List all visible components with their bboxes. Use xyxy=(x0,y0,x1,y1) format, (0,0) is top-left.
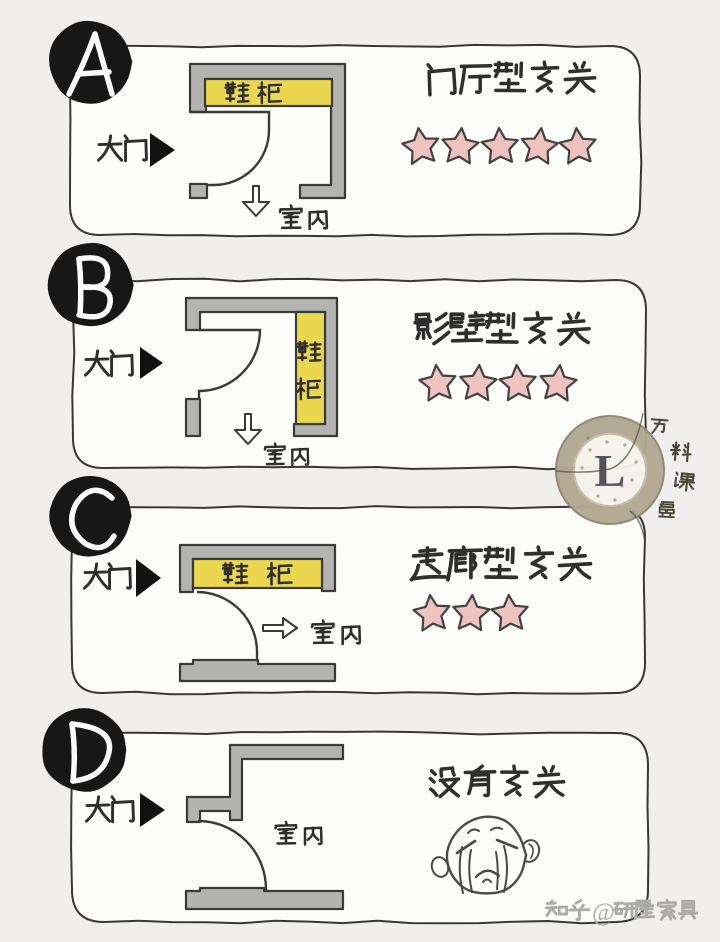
svg-text:@: @ xyxy=(592,899,615,926)
